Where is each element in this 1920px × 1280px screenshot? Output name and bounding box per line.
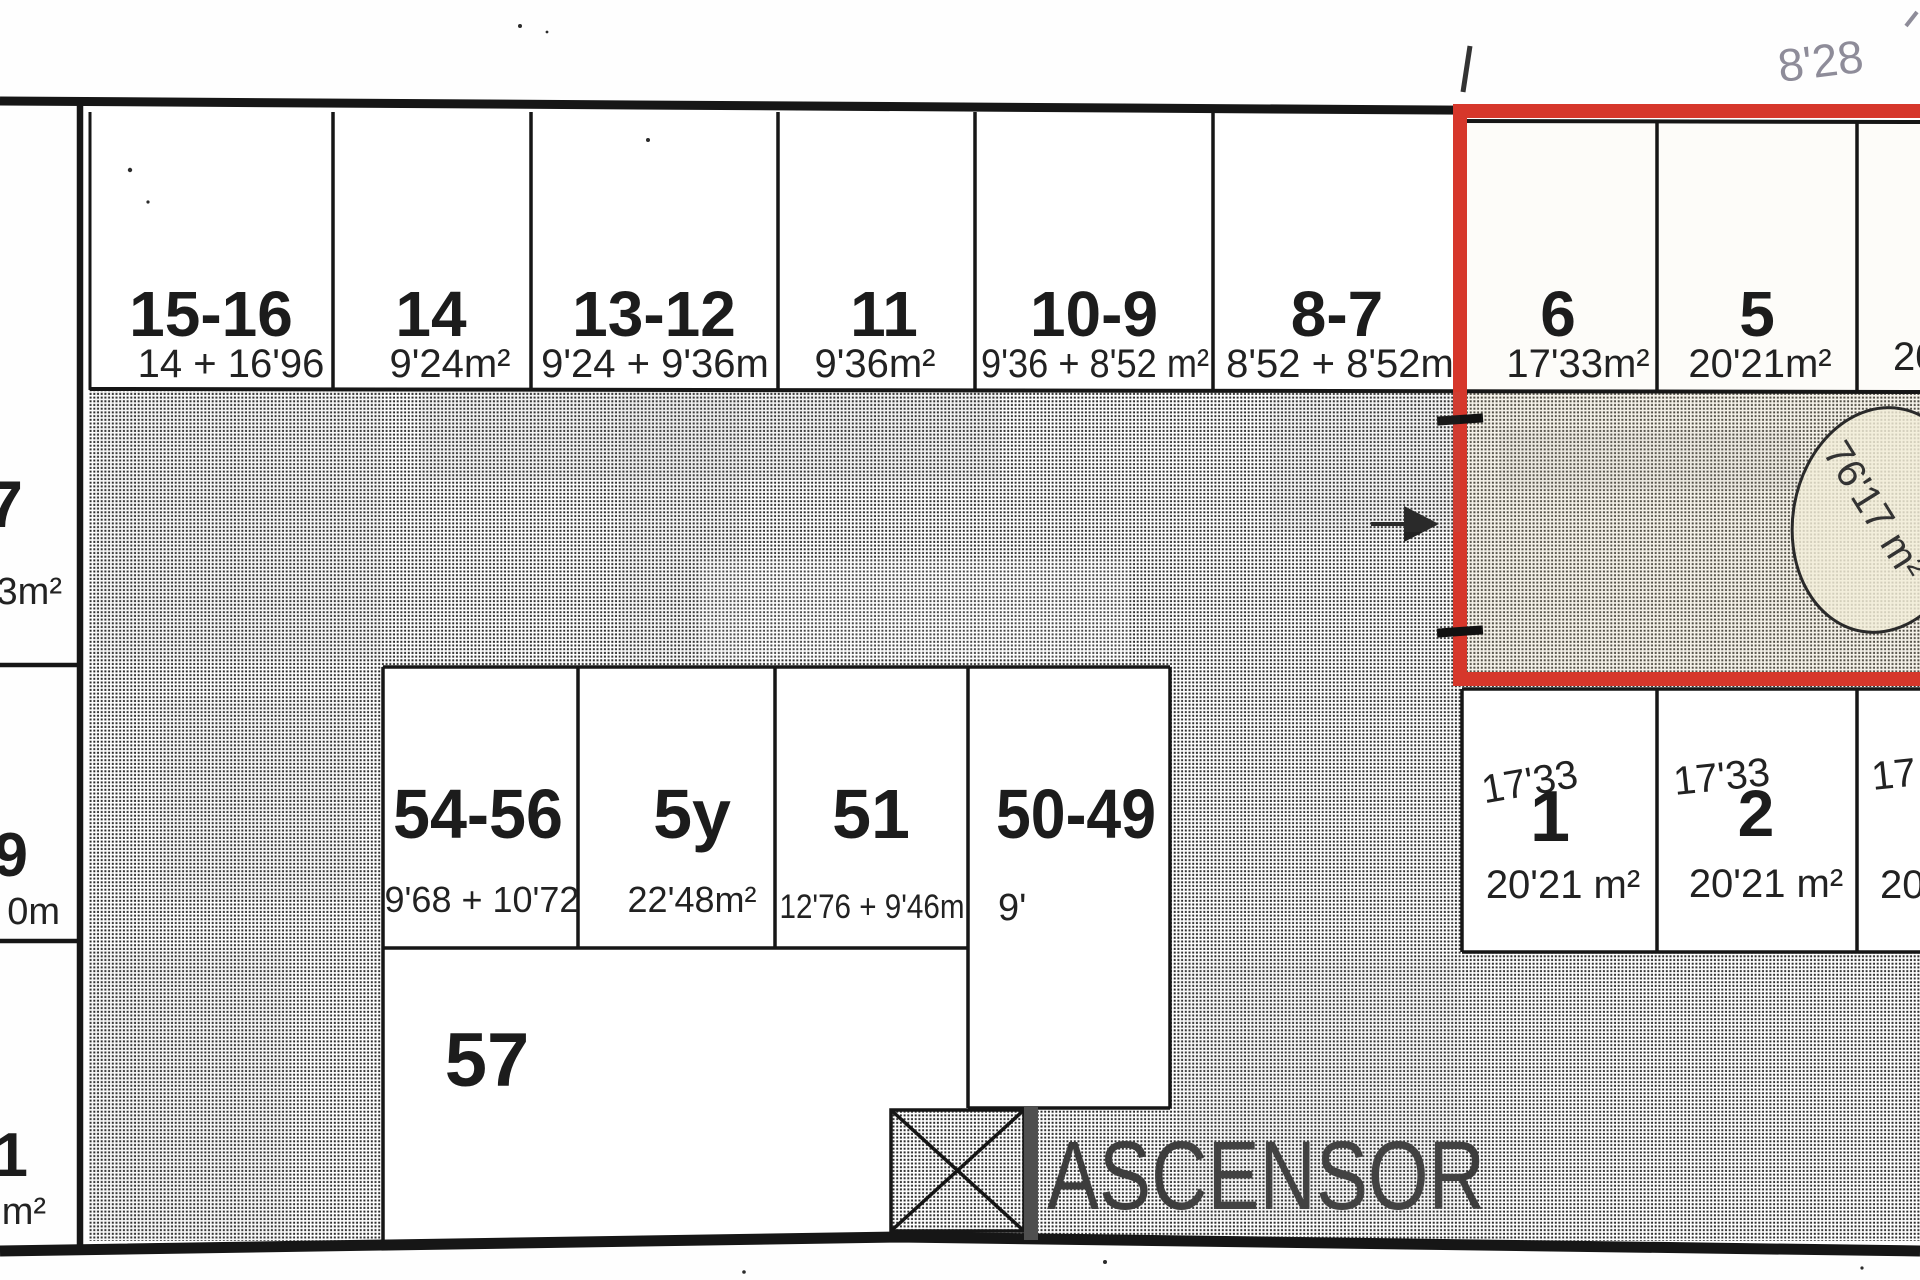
svg-text:17'33m²: 17'33m² [1506, 342, 1649, 386]
svg-text:7: 7 [0, 467, 23, 541]
svg-text:1: 1 [1530, 777, 1570, 857]
svg-text:9'68 + 10'72: 9'68 + 10'72 [385, 879, 580, 920]
svg-text:22'48m²: 22'48m² [628, 879, 757, 920]
svg-text:9: 9 [0, 821, 28, 890]
svg-text:51: 51 [832, 775, 910, 853]
svg-text:50-49: 50-49 [996, 775, 1156, 853]
svg-text:8'52 + 8'52m: 8'52 + 8'52m [1226, 342, 1454, 386]
svg-text:6: 6 [1540, 278, 1576, 350]
svg-text:13-12: 13-12 [572, 278, 736, 350]
svg-text:20'21m²: 20'21m² [1688, 342, 1831, 386]
svg-text:15-16: 15-16 [129, 278, 293, 350]
svg-text:20: 20 [1893, 335, 1920, 379]
svg-text:20'21 m²: 20'21 m² [1689, 862, 1843, 906]
svg-text:14: 14 [395, 278, 467, 350]
svg-text:20'21 m²: 20'21 m² [1486, 863, 1640, 907]
svg-text:9'36m²: 9'36m² [814, 342, 935, 386]
svg-text:5y: 5y [653, 775, 731, 853]
svg-text:9': 9' [998, 887, 1026, 929]
svg-text:10-9: 10-9 [1030, 278, 1158, 350]
svg-text:12'76 + 9'46m: 12'76 + 9'46m [780, 888, 965, 926]
svg-text:54-56: 54-56 [393, 775, 563, 853]
svg-text:14 + 16'96: 14 + 16'96 [138, 342, 325, 386]
svg-text:1: 1 [0, 1121, 28, 1190]
svg-text:9'24m²: 9'24m² [389, 342, 510, 386]
svg-text:11: 11 [850, 278, 918, 350]
svg-text:17: 17 [1869, 751, 1918, 799]
svg-text:9'24 + 9'36m: 9'24 + 9'36m [541, 342, 769, 386]
svg-text:5: 5 [1739, 278, 1775, 350]
svg-text:3m²: 3m² [0, 571, 62, 613]
svg-text:8'28: 8'28 [1775, 30, 1866, 92]
svg-text:m²: m² [2, 1191, 46, 1233]
svg-text:0m: 0m [7, 891, 60, 933]
svg-text:20: 20 [1880, 863, 1920, 907]
svg-text:57: 57 [445, 1018, 530, 1103]
svg-text:2: 2 [1738, 776, 1775, 850]
svg-text:9'36 + 8'52 m²: 9'36 + 8'52 m² [981, 342, 1209, 386]
svg-text:8-7: 8-7 [1291, 278, 1384, 350]
